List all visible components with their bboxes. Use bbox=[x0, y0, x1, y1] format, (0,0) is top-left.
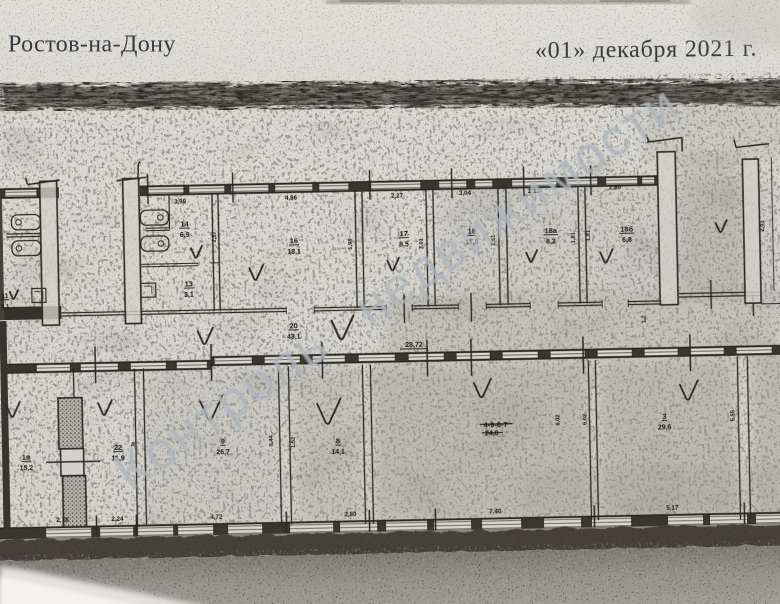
svg-text:18а: 18а bbox=[544, 226, 558, 235]
svg-text:2,24: 2,24 bbox=[111, 516, 124, 523]
svg-text:6,8: 6,8 bbox=[622, 237, 632, 244]
svg-text:2,57: 2,57 bbox=[212, 231, 218, 242]
svg-text:1,2: 1,2 bbox=[641, 315, 647, 323]
svg-text:28,72: 28,72 bbox=[405, 342, 423, 349]
svg-text:3,1: 3,1 bbox=[1, 304, 10, 310]
svg-text:6,9: 6,9 bbox=[180, 232, 190, 239]
svg-text:15,2: 15,2 bbox=[19, 465, 33, 472]
svg-text:2,80: 2,80 bbox=[344, 511, 357, 518]
svg-text:3,04: 3,04 bbox=[459, 190, 472, 197]
svg-text:24,8: 24,8 bbox=[485, 430, 499, 437]
svg-text:1в: 1в bbox=[22, 453, 31, 462]
svg-text:18,1: 18,1 bbox=[287, 249, 301, 256]
svg-text:3: 3 bbox=[662, 412, 666, 421]
svg-text:1,52: 1,52 bbox=[291, 437, 297, 448]
svg-text:1,98: 1,98 bbox=[348, 238, 354, 250]
svg-text:13: 13 bbox=[184, 279, 193, 288]
svg-text:26,7: 26,7 bbox=[216, 449, 230, 456]
svg-text:4-9-8-7: 4-9-8-7 bbox=[483, 420, 507, 429]
svg-text:29,6: 29,6 bbox=[658, 424, 672, 431]
svg-text:17: 17 bbox=[399, 229, 408, 238]
svg-text:3,98: 3,98 bbox=[174, 198, 187, 205]
svg-text:Ростов-на-Дону: Ростов-на-Дону bbox=[8, 32, 176, 58]
svg-text:8,2: 8,2 bbox=[546, 239, 556, 246]
svg-text:18б: 18б bbox=[620, 224, 634, 233]
svg-text:2,78: 2,78 bbox=[56, 517, 69, 524]
svg-text:6,44: 6,44 bbox=[269, 434, 275, 446]
svg-text:2,01: 2,01 bbox=[760, 219, 766, 231]
svg-text:2,80: 2,80 bbox=[609, 184, 622, 191]
svg-text:5,17: 5,17 bbox=[666, 505, 679, 512]
svg-text:8: 8 bbox=[336, 436, 340, 445]
svg-text:6,02: 6,02 bbox=[582, 414, 588, 425]
svg-text:11: 11 bbox=[1, 293, 8, 300]
svg-text:1,81: 1,81 bbox=[571, 231, 577, 243]
svg-text:4,72: 4,72 bbox=[210, 514, 223, 521]
svg-text:2,27: 2,27 bbox=[391, 193, 404, 200]
svg-text:16: 16 bbox=[290, 236, 299, 245]
svg-text:14: 14 bbox=[180, 219, 189, 228]
svg-text:6,02: 6,02 bbox=[555, 414, 561, 425]
svg-text:14,1: 14,1 bbox=[331, 449, 345, 456]
svg-text:7,40: 7,40 bbox=[489, 508, 502, 515]
svg-text:5,55: 5,55 bbox=[730, 409, 736, 421]
svg-text:1,81: 1,81 bbox=[586, 229, 592, 241]
svg-text:3,1: 3,1 bbox=[184, 292, 194, 299]
svg-text:4,86: 4,86 bbox=[285, 195, 298, 202]
